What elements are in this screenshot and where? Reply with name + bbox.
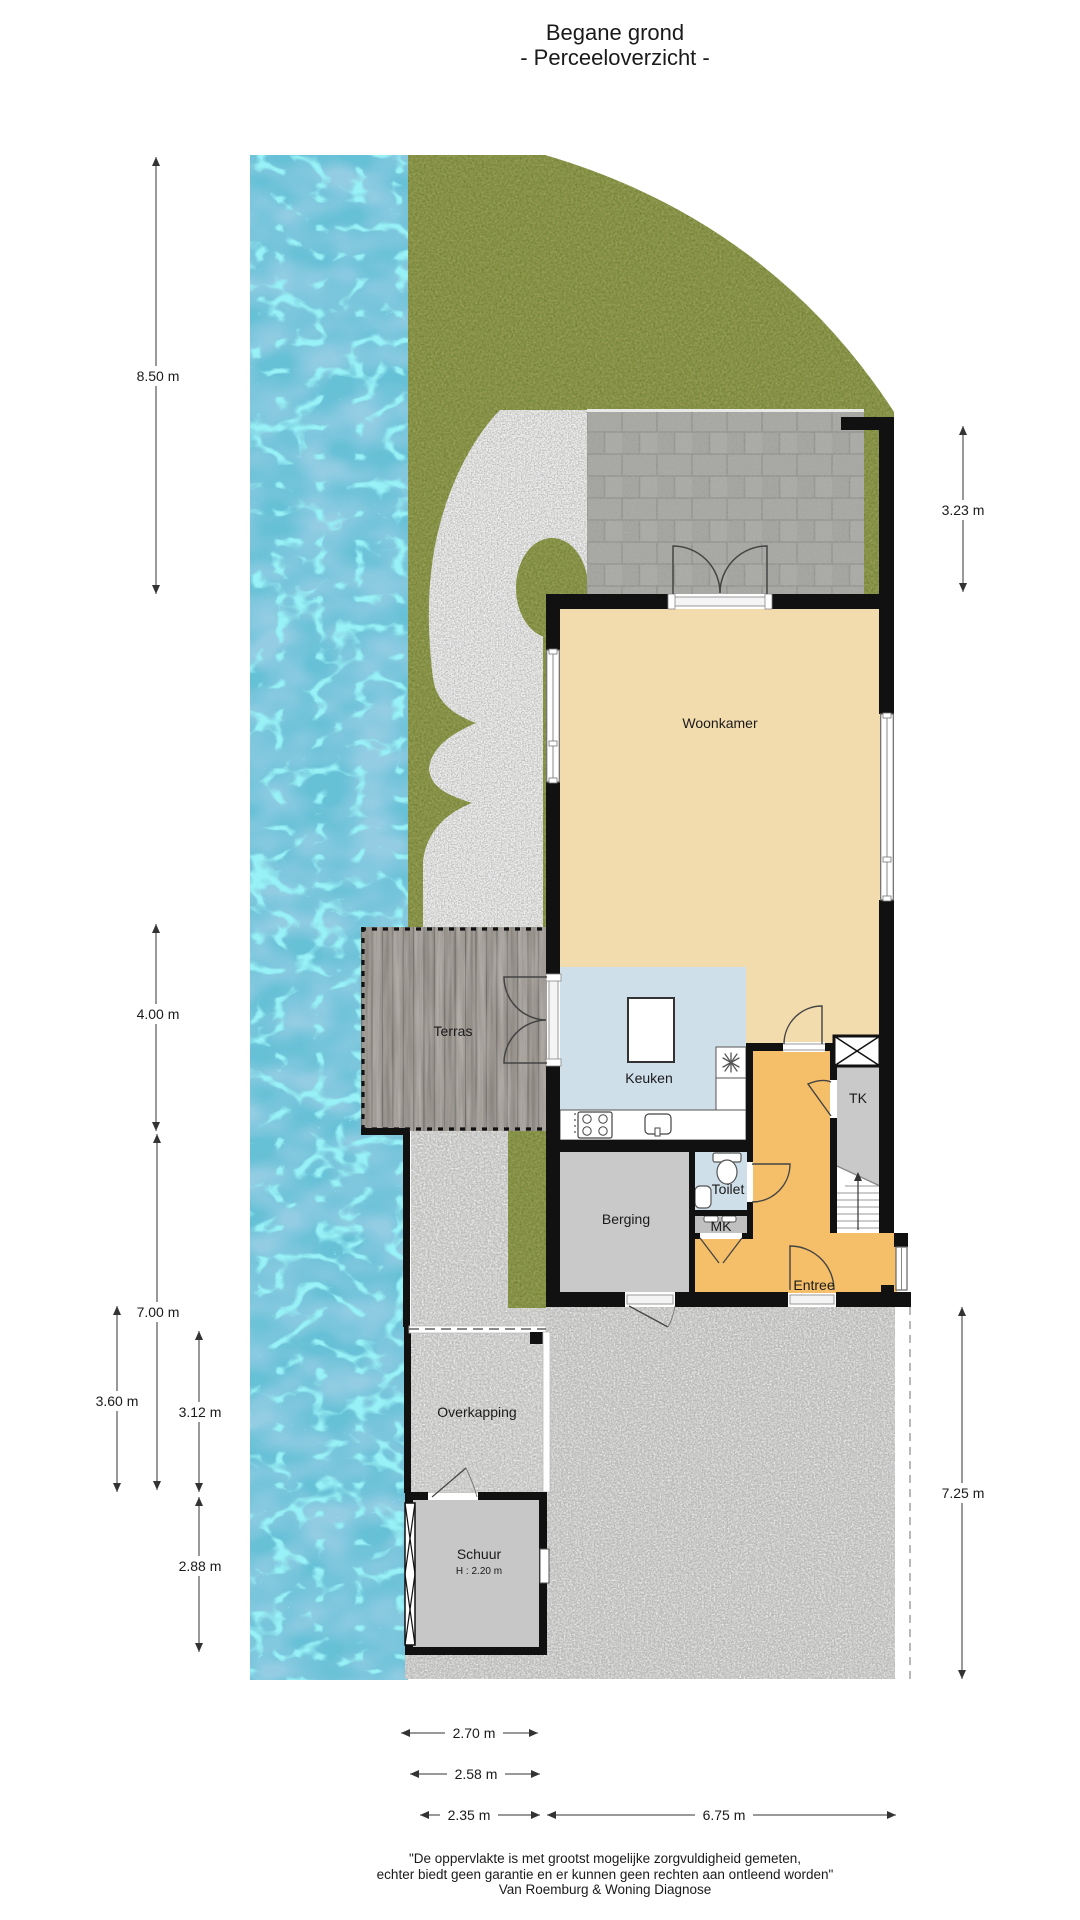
svg-text:Overkapping: Overkapping	[437, 1404, 516, 1420]
svg-text:Van Roemburg & Woning Diagnose: Van Roemburg & Woning Diagnose	[499, 1882, 712, 1897]
svg-text:3.12 m: 3.12 m	[179, 1404, 222, 1420]
svg-text:Schuur: Schuur	[457, 1546, 502, 1562]
svg-text:- Perceeloverzicht -: - Perceeloverzicht -	[520, 45, 710, 70]
svg-text:Terras: Terras	[434, 1023, 473, 1039]
svg-text:MK: MK	[711, 1218, 733, 1234]
svg-text:6.75 m: 6.75 m	[703, 1807, 746, 1823]
svg-text:3.23 m: 3.23 m	[942, 502, 985, 518]
svg-text:7.25 m: 7.25 m	[942, 1485, 985, 1501]
svg-text:echter biedt geen garantie en: echter biedt geen garantie en er kunnen …	[377, 1867, 834, 1882]
svg-text:2.35 m: 2.35 m	[448, 1807, 491, 1823]
svg-text:Keuken: Keuken	[625, 1070, 672, 1086]
svg-text:8.50 m: 8.50 m	[137, 368, 180, 384]
svg-text:Entree: Entree	[793, 1277, 834, 1293]
svg-text:2.70 m: 2.70 m	[453, 1725, 496, 1741]
svg-text:2.58 m: 2.58 m	[455, 1766, 498, 1782]
svg-text:2.88 m: 2.88 m	[179, 1558, 222, 1574]
svg-text:"De oppervlakte is met grootst: "De oppervlakte is met grootst mogelijke…	[409, 1851, 801, 1866]
svg-text:Woonkamer: Woonkamer	[682, 715, 758, 731]
svg-text:3.60 m: 3.60 m	[96, 1393, 139, 1409]
svg-text:TK: TK	[849, 1090, 868, 1106]
svg-text:H : 2.20 m: H : 2.20 m	[456, 1566, 502, 1577]
svg-text:4.00 m: 4.00 m	[137, 1006, 180, 1022]
svg-text:Begane grond: Begane grond	[546, 20, 684, 45]
svg-text:Toilet: Toilet	[712, 1181, 745, 1197]
svg-text:7.00 m: 7.00 m	[137, 1304, 180, 1320]
svg-text:Berging: Berging	[602, 1211, 650, 1227]
